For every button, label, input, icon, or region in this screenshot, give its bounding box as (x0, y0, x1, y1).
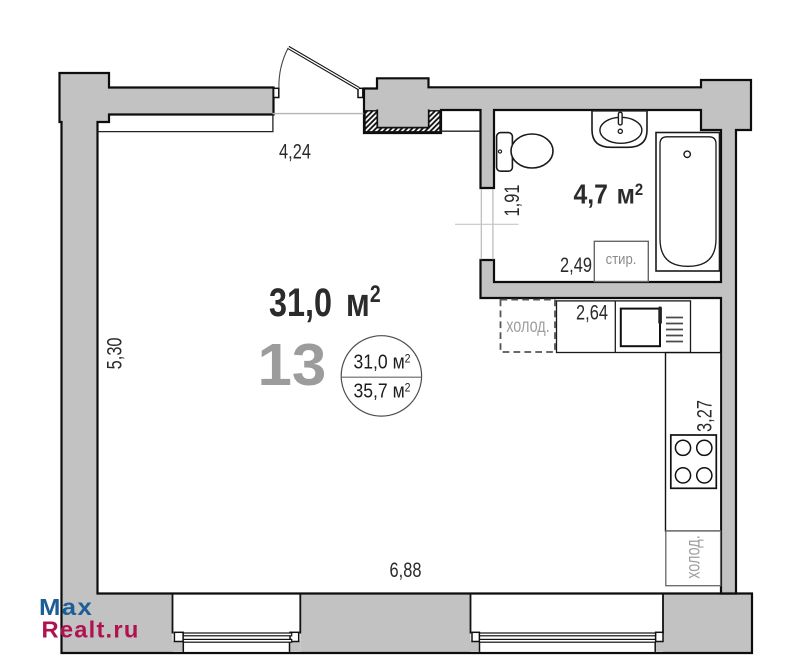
svg-text:4,7 м2: 4,7 м2 (574, 178, 644, 210)
svg-text:13: 13 (258, 331, 327, 398)
svg-text:2,64: 2,64 (576, 300, 608, 323)
svg-text:4,24: 4,24 (279, 140, 311, 163)
svg-text:2,49: 2,49 (560, 253, 592, 276)
svg-text:31,0 м2: 31,0 м2 (269, 280, 381, 325)
svg-text:6,88: 6,88 (390, 558, 422, 581)
svg-text:1,91: 1,91 (500, 185, 523, 217)
svg-text:стир.: стир. (606, 251, 637, 267)
svg-text:Realt.ru: Realt.ru (42, 617, 140, 643)
svg-text:5,30: 5,30 (103, 337, 126, 369)
svg-text:35,7 м2: 35,7 м2 (353, 379, 410, 401)
svg-text:3,27: 3,27 (693, 400, 716, 432)
svg-text:холод.: холод. (683, 535, 704, 578)
svg-text:31,0 м2: 31,0 м2 (353, 350, 410, 372)
svg-text:холод.: холод. (506, 315, 549, 336)
